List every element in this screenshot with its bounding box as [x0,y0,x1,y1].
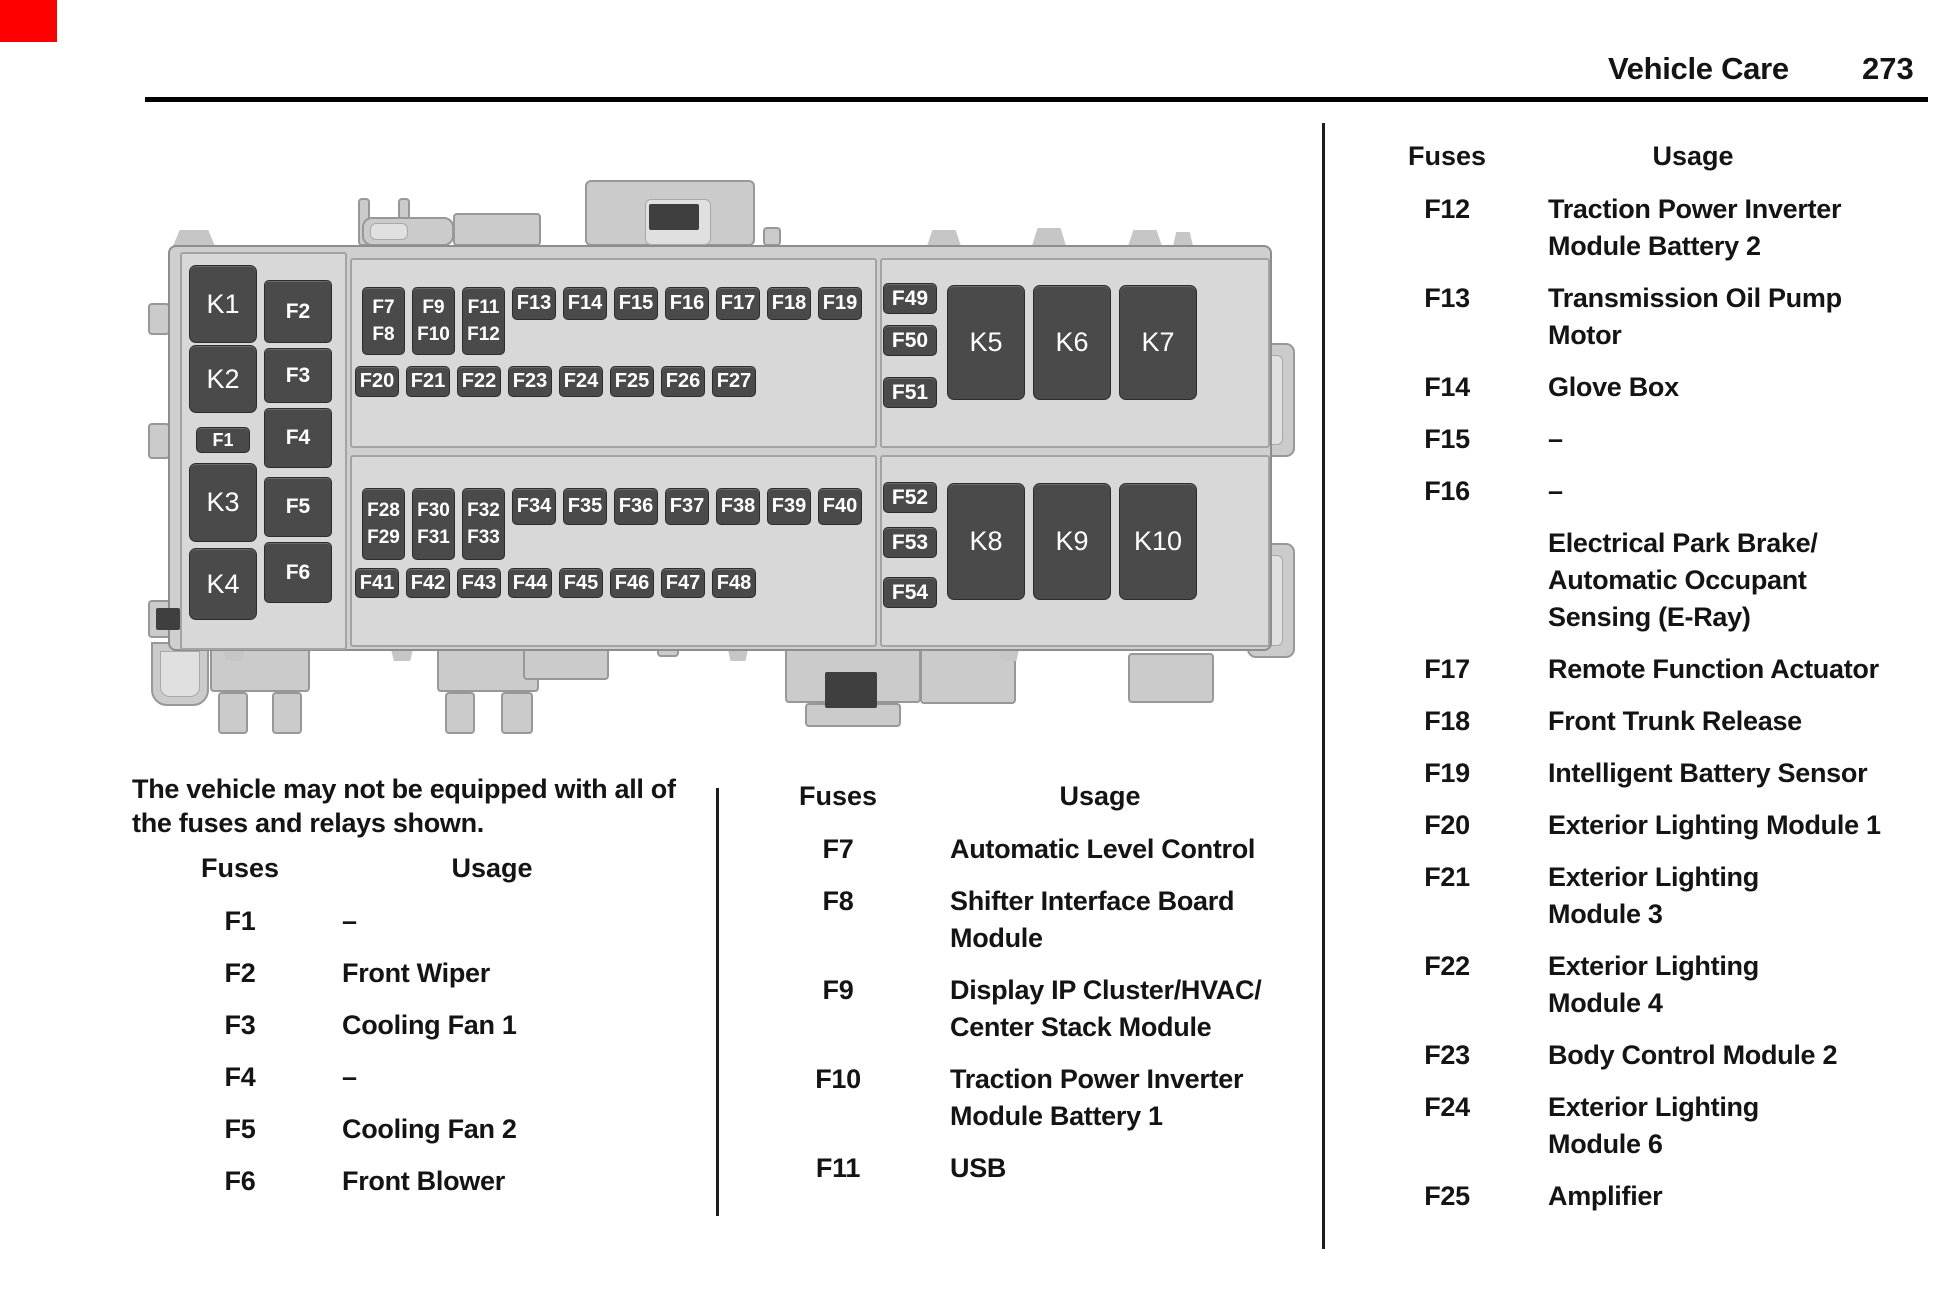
fuse-table-row: F24 Exterior Lighting Module 6 [1385,1089,1928,1163]
fuse-box: F2 [264,280,332,343]
fuse-usage: Automatic Level Control [950,831,1300,868]
fuse-table-header: Fuses Usage [770,778,1300,815]
fuse-table-row: F1 – [180,903,642,940]
fuse-usage: – [1548,421,1928,458]
fuse-box: F13 [512,287,556,320]
fuse-usage: Electrical Park Brake/ Automatic Occupan… [1548,525,1928,636]
fuse-usage: Exterior Lighting Module 6 [1548,1089,1928,1163]
clip-tab [173,230,215,246]
fuse-box: F18 [767,287,811,320]
fuse-box: F20 [355,366,399,397]
connector-tab-wide [453,213,541,246]
fuse-box-double: F30 F31 [412,488,455,560]
fuse-table-header: Fuses Usage [1385,138,1928,175]
fuse-table-row: F14 Glove Box [1385,369,1928,406]
fuse-table-row: F21 Exterior Lighting Module 3 [1385,859,1928,933]
fuse-box: F47 [661,568,705,598]
clip-tab [1032,228,1066,246]
fuse-usage: Shifter Interface Board Module [950,883,1300,957]
fuse-box: F21 [406,366,450,397]
relay-k1: K1 [189,265,257,343]
fuse-column-right-bottom: F52F53F54 [883,482,937,608]
fuse-id: F21 [1385,859,1509,933]
fuse-box-double: F9 F10 [412,287,455,355]
fuse-id: F2 [180,955,300,992]
connector-tab-small [763,227,781,246]
fuse-id: F4 [180,1059,300,1096]
fuse-usage: Traction Power Inverter Module Battery 2 [1548,191,1928,265]
fuse-table-row: F5 Cooling Fan 2 [180,1111,642,1148]
fuse-id: F22 [1385,948,1509,1022]
relay-k4: K4 [189,548,257,620]
fuse-box: F48 [712,568,756,598]
fuses-header: Fuses [1385,138,1509,175]
fuse-box-double: F7 F8 [362,287,405,355]
fuse-box: F49 [883,283,937,314]
fuse-box: F36 [614,488,658,525]
fuse-id: F5 [180,1111,300,1148]
fuse-label: F29 [367,524,400,551]
fuse-box-double: F28 F29 [362,488,405,560]
fuse-id [1385,525,1509,636]
bottom-bracket-leg [445,692,475,734]
column-divider-left [716,788,719,1216]
fuse-usage: Amplifier [1548,1178,1928,1215]
fuse-table-rows: F7 Automatic Level Control F8 Shifter In… [770,831,1300,1187]
fuse-box: F54 [883,577,937,608]
fuse-box: F53 [883,527,937,558]
bottom-block [1128,653,1214,703]
fuse-id: F8 [770,883,906,957]
left-edge-clip [148,303,170,335]
relay-row-right-top: K5K6K7 [947,285,1197,400]
fuse-table-row: F6 Front Blower [180,1163,642,1200]
fuses-header: Fuses [180,850,300,887]
fuse-table-left: Fuses Usage F1 – F2 Front Wiper F3 Cooli… [180,850,642,1215]
fuse-label: F31 [417,524,450,551]
fuse-label: F11 [468,294,500,321]
fuse-table-row: F10 Traction Power Inverter Module Batte… [770,1061,1300,1135]
fuse-box: F26 [661,366,705,397]
bottom-connector-notch [825,672,877,708]
clip-tab [1173,232,1193,246]
usage-header: Usage [1548,138,1838,175]
fuse-box: F39 [767,488,811,525]
header-rule [145,97,1928,102]
fuse-id: F6 [180,1163,300,1200]
fuse-table-row: F8 Shifter Interface Board Module [770,883,1300,957]
fuse-usage: Exterior Lighting Module 4 [1548,948,1928,1022]
fuse-id: F17 [1385,651,1509,688]
fuse-table-row: F9 Display IP Cluster/HVAC/ Center Stack… [770,972,1300,1046]
relay-box: K7 [1119,285,1197,400]
fuse-box: F50 [883,325,937,356]
fuse-id: F16 [1385,473,1509,510]
relay-box: K9 [1033,483,1111,600]
connector-clamp-inner [370,223,408,240]
fuse-table-rows: F12 Traction Power Inverter Module Batte… [1385,191,1928,1215]
manual-page: Vehicle Care 273 [0,0,1946,1291]
fuse-id: F7 [770,831,906,868]
fuse-usage: – [342,903,642,940]
fuse-id: F10 [770,1061,906,1135]
fuse-usage: Front Wiper [342,955,642,992]
fuse-box: F6 [264,542,332,603]
fuse-id: F11 [770,1150,906,1187]
fuse-table-row: F2 Front Wiper [180,955,642,992]
fuse-table-row: F23 Body Control Module 2 [1385,1037,1928,1074]
fuse-row-singles-top: F13F14F15F16F17F18F19 [512,287,862,320]
fuse-table-right: Fuses Usage F12 Traction Power Inverter … [1385,138,1928,1230]
fuse-box: F52 [883,482,937,513]
relay-box: K5 [947,285,1025,400]
fuse-usage: Cooling Fan 1 [342,1007,642,1044]
fuse-id: F20 [1385,807,1509,844]
bottom-connector-round-inner [160,651,200,697]
fuse-box: F27 [712,366,756,397]
fuse-usage: Transmission Oil Pump Motor [1548,280,1928,354]
fuse-box: F42 [406,568,450,598]
fuse-usage: Remote Function Actuator [1548,651,1928,688]
fuse-usage: USB [950,1150,1300,1187]
fuse-usage: Cooling Fan 2 [342,1111,642,1148]
fuse-box: F24 [559,366,603,397]
fuse-table-row: F16 – [1385,473,1928,510]
fuse-id: F25 [1385,1178,1509,1215]
fuse-box: F38 [716,488,760,525]
fuse-table-row: Electrical Park Brake/ Automatic Occupan… [1385,525,1928,636]
fuse-usage: Traction Power Inverter Module Battery 1 [950,1061,1300,1135]
page-number: 273 [1862,50,1914,87]
fuse-box: F19 [818,287,862,320]
fuse-id: F24 [1385,1089,1509,1163]
fuse-id: F23 [1385,1037,1509,1074]
fuse-box: F40 [818,488,862,525]
fuse-table-row: F3 Cooling Fan 1 [180,1007,642,1044]
red-corner-mark [0,0,57,42]
fuse-box: F25 [610,366,654,397]
fuse-table-row: F25 Amplifier [1385,1178,1928,1215]
bottom-bracket-leg [272,692,302,734]
fuse-box: F14 [563,287,607,320]
fuse-id: F18 [1385,703,1509,740]
fuse-id: F12 [1385,191,1509,265]
fuse-row-singles-bottom: F34F35F36F37F38F39F40 [512,488,862,525]
fuse-box: F46 [610,568,654,598]
fuse-f1: F1 [196,427,250,453]
fuse-box: F5 [264,477,332,537]
fuse-box: F23 [508,366,552,397]
fuse-id: F1 [180,903,300,940]
fuse-label: F30 [417,497,450,524]
fuse-table-row: F12 Traction Power Inverter Module Batte… [1385,191,1928,265]
fuse-table-middle: Fuses Usage F7 Automatic Level Control F… [770,778,1300,1202]
fuse-label: F33 [467,524,500,551]
bottom-bracket-leg [501,692,533,734]
fuse-box: F34 [512,488,556,525]
fuse-box: F45 [559,568,603,598]
connector-notch [649,204,699,230]
fuse-table-rows: F1 – F2 Front Wiper F3 Cooling Fan 1 F4 … [180,903,642,1200]
fuse-box-diagram: K1 K2 F1 K3 K4 F2F3F4F5F6 F7 F8 F9 F10 F… [140,175,1340,760]
fuse-id: F19 [1385,755,1509,792]
fuse-box: F17 [716,287,760,320]
section-title: Vehicle Care [1608,50,1789,87]
fuse-row-doubles-top: F7 F8 F9 F10 F11 F12 [362,287,505,355]
fuse-box: F4 [264,408,332,468]
fuse-usage: Body Control Module 2 [1548,1037,1928,1074]
fuse-usage: Front Blower [342,1163,642,1200]
fuse-table-header: Fuses Usage [180,850,642,887]
fuse-label: F12 [467,321,500,348]
fuse-row-f41: F41F42F43F44F45F46F47F48 [355,568,756,598]
fuse-table-row: F13 Transmission Oil Pump Motor [1385,280,1928,354]
relay-box: K8 [947,483,1025,600]
fuse-table-row: F19 Intelligent Battery Sensor [1385,755,1928,792]
fuse-label: F28 [367,497,400,524]
relay-row-right-bottom: K8K9K10 [947,483,1197,600]
relay-box: K6 [1033,285,1111,400]
fuse-label: F32 [467,497,500,524]
fuse-box: F44 [508,568,552,598]
fuse-usage: Exterior Lighting Module 1 [1548,807,1928,844]
fuse-row-doubles-bottom: F28 F29 F30 F31 F32 F33 [362,488,505,560]
relay-column-left: K1 K2 F1 K3 K4 [189,265,257,620]
fuse-table-row: F20 Exterior Lighting Module 1 [1385,807,1928,844]
fuse-table-row: F4 – [180,1059,642,1096]
fuse-box-double: F11 F12 [462,287,505,355]
fuse-box: F43 [457,568,501,598]
clip-tab [927,230,961,246]
fuse-label: F7 [372,294,394,321]
equipment-note: The vehicle may not be equipped with all… [132,772,732,840]
usage-header: Usage [950,778,1250,815]
fuse-usage: Exterior Lighting Module 3 [1548,859,1928,933]
bottom-bracket-leg [218,692,248,734]
fuse-table-row: F15 – [1385,421,1928,458]
fuse-box: F37 [665,488,709,525]
fuse-id: F14 [1385,369,1509,406]
fuse-box: F22 [457,366,501,397]
fuse-usage: Glove Box [1548,369,1928,406]
fuse-id: F3 [180,1007,300,1044]
fuses-header: Fuses [770,778,906,815]
fuse-usage: Intelligent Battery Sensor [1548,755,1928,792]
fuse-box: F15 [614,287,658,320]
relay-k3: K3 [189,463,257,542]
fuse-table-row: F18 Front Trunk Release [1385,703,1928,740]
fuse-usage: Display IP Cluster/HVAC/ Center Stack Mo… [950,972,1300,1046]
fuse-box: F41 [355,568,399,598]
fuse-usage: Front Trunk Release [1548,703,1928,740]
fuse-table-row: F11 USB [770,1150,1300,1187]
fuse-box: F51 [883,377,937,408]
fuse-box: F35 [563,488,607,525]
fuse-row-f20: F20F21F22F23F24F25F26F27 [355,366,756,397]
fuse-id: F13 [1385,280,1509,354]
fuse-id: F15 [1385,421,1509,458]
clip-tab [1128,230,1162,246]
relay-k2: K2 [189,345,257,413]
fuse-label: F10 [417,321,450,348]
left-edge-clip [148,423,170,459]
fuse-label: F8 [372,321,394,348]
fuse-table-row: F7 Automatic Level Control [770,831,1300,868]
usage-header: Usage [342,850,642,887]
fuse-box: F3 [264,348,332,403]
fuse-box: F16 [665,287,709,320]
fuse-usage: – [1548,473,1928,510]
fuse-column-left: F2F3F4F5F6 [264,280,332,603]
fuse-table-row: F22 Exterior Lighting Module 4 [1385,948,1928,1022]
fuse-label: F9 [422,294,444,321]
fuse-box-double: F32 F33 [462,488,505,560]
fuse-id: F9 [770,972,906,1046]
fuse-table-row: F17 Remote Function Actuator [1385,651,1928,688]
relay-box: K10 [1119,483,1197,600]
fuse-usage: – [342,1059,642,1096]
fuse-column-right-top: F49F50F51 [883,283,937,408]
left-edge-connector-dark [156,608,180,630]
